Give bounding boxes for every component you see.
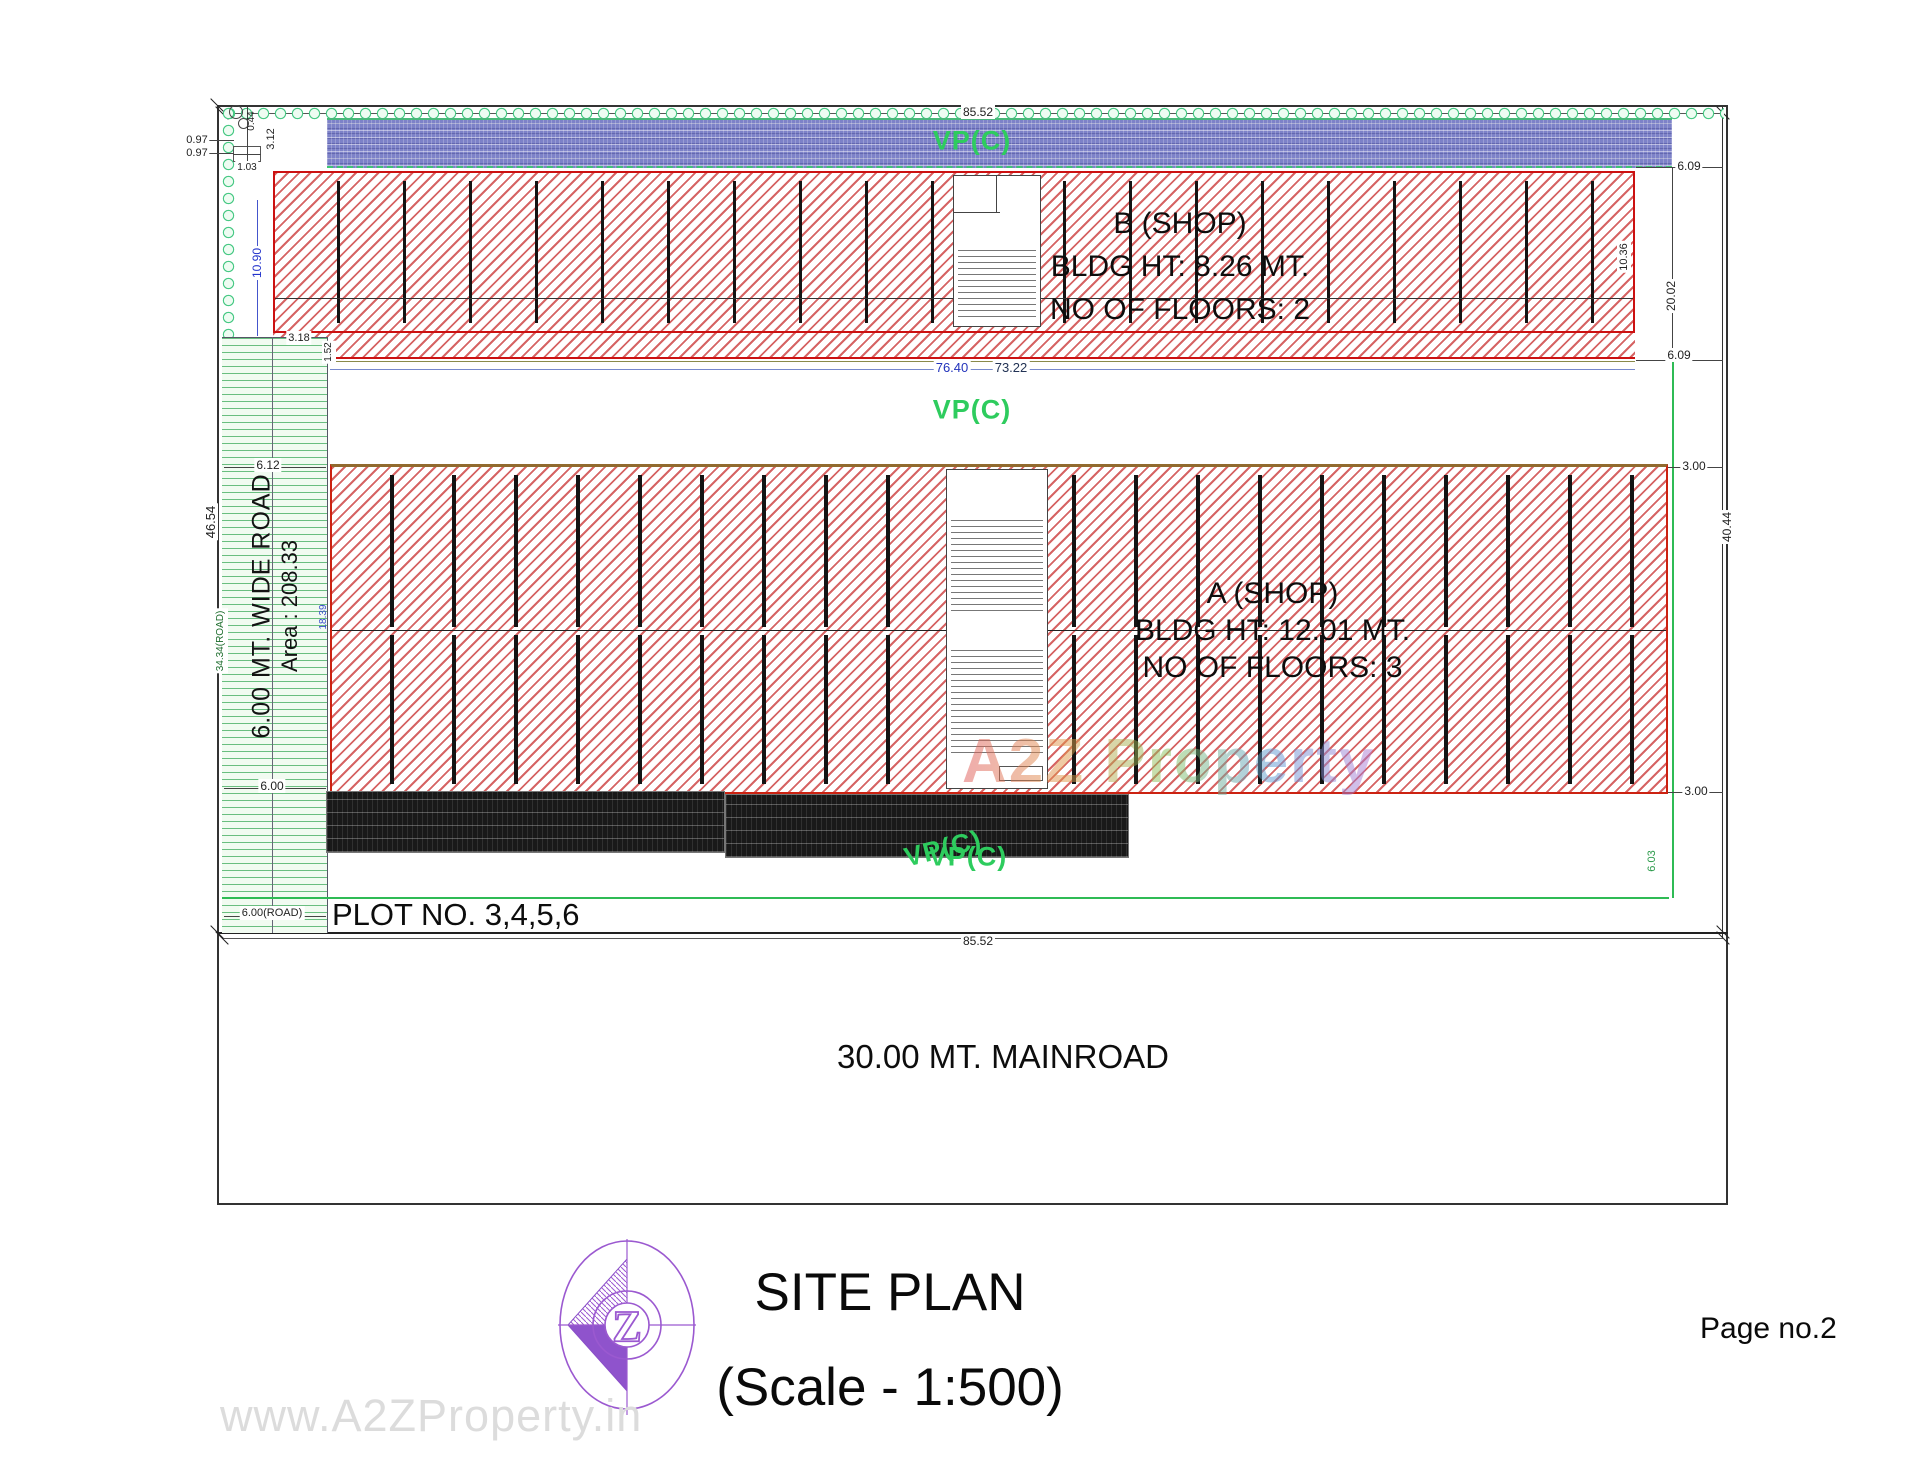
dim-a-span: 40.44 bbox=[1720, 510, 1734, 544]
building-a-text: A (SHOP) BLDG HT: 12.01 MT. NO OF FLOORS… bbox=[1100, 575, 1445, 686]
watermark-center: A2Z Property bbox=[962, 726, 1375, 797]
dim-corner-1: 0.97 bbox=[184, 133, 209, 147]
building-a-name: A (SHOP) bbox=[1100, 575, 1445, 612]
building-b bbox=[273, 171, 1635, 333]
dim-b-offset: 3.18 bbox=[286, 331, 311, 345]
right-dim-line bbox=[1672, 167, 1673, 361]
dim-road-top: 6.12 bbox=[254, 458, 281, 472]
building-a-height: BLDG HT: 12.01 MT. bbox=[1100, 612, 1445, 649]
road-label-width: 6.00 MT. WIDE ROAD bbox=[248, 473, 277, 738]
dim-arrow-line bbox=[206, 153, 234, 154]
page-scale: (Scale - 1:500) bbox=[640, 1340, 1140, 1435]
right-green-line bbox=[1672, 361, 1674, 898]
logo-letter: Z bbox=[612, 1302, 641, 1351]
dim-corner-5: 0.44 bbox=[245, 109, 259, 132]
dim-bottom-width: 85.52 bbox=[961, 934, 995, 948]
dim-left-road: 34.34(ROAD) bbox=[214, 609, 228, 674]
dim-right-gap-top: 6.09 bbox=[1675, 159, 1702, 173]
dim-arrow-line bbox=[206, 140, 234, 141]
building-a-floors: NO OF FLOORS: 3 bbox=[1100, 649, 1445, 686]
stair-wall bbox=[954, 212, 1000, 213]
b-bottom-dim-line bbox=[330, 369, 1635, 370]
building-b-floors: NO OF FLOORS: 2 bbox=[1020, 288, 1340, 331]
dim-right-gap-mid: 6.09 bbox=[1665, 348, 1692, 362]
dim-right-b-span: 20.02 bbox=[1664, 279, 1678, 313]
road-label-area: Area : 208.33 bbox=[277, 540, 303, 672]
dim-corner-4: 1.03 bbox=[235, 161, 258, 175]
plot-number-label: PLOT NO. 3,4,5,6 bbox=[332, 898, 580, 932]
dim-a-top-margin: 3.00 bbox=[1680, 459, 1707, 473]
dim-road-bottom: 6.00(ROAD) bbox=[240, 906, 305, 920]
watermark-bottom: www.A2ZProperty.in bbox=[220, 1390, 642, 1442]
vp-top-label: VP(C) bbox=[933, 126, 1012, 157]
dim-b-bottom-black: 73.22 bbox=[993, 361, 1030, 375]
dim-b-bottom-blue: 76.40 bbox=[934, 361, 971, 375]
building-b-height: BLDG HT: 8.26 MT. bbox=[1020, 245, 1340, 288]
building-b-apron-strip bbox=[273, 333, 1635, 359]
dim-corner-3: 3.12 bbox=[264, 126, 278, 151]
dim-corner-2: 0.97 bbox=[184, 146, 209, 160]
dim-left-total: 46.54 bbox=[204, 504, 218, 541]
title-block: SITE PLAN (Scale - 1:500) bbox=[640, 1245, 1140, 1435]
building-b-name: B (SHOP) bbox=[1020, 202, 1340, 245]
vp-bottom-label-b: VP(C) bbox=[929, 842, 1008, 873]
utility-circle bbox=[229, 105, 243, 119]
dim-road-mid: 6.00 bbox=[258, 779, 285, 793]
building-b-text: B (SHOP) BLDG HT: 8.26 MT. NO OF FLOORS:… bbox=[1020, 202, 1340, 331]
dim-b-left-height: 10.90 bbox=[250, 246, 264, 280]
page-number: Page no.2 bbox=[1700, 1312, 1837, 1346]
vp-middle-label: VP(C) bbox=[933, 395, 1012, 426]
page-title: SITE PLAN bbox=[640, 1245, 1140, 1340]
stair-treads bbox=[951, 520, 1043, 616]
mainroad-label: 30.00 MT. MAINROAD bbox=[803, 1038, 1203, 1076]
dim-b-right-height: 10.36 bbox=[1617, 241, 1631, 273]
stair-wall bbox=[996, 176, 997, 212]
site-plan-page: VP(C) 0.97 0.97 0.44 3.12 1.03 B (SHOP) … bbox=[0, 0, 1920, 1483]
dim-a-bottom-margin: 3.00 bbox=[1682, 784, 1709, 798]
dim-top-width: 85.52 bbox=[961, 105, 995, 119]
dim-b-offset2: 1.52 bbox=[322, 340, 336, 363]
vp-strip-bottom-left bbox=[326, 791, 725, 853]
dim-a-left: 18.39 bbox=[317, 602, 331, 631]
dim-road-right: 6.03 bbox=[1645, 848, 1659, 873]
